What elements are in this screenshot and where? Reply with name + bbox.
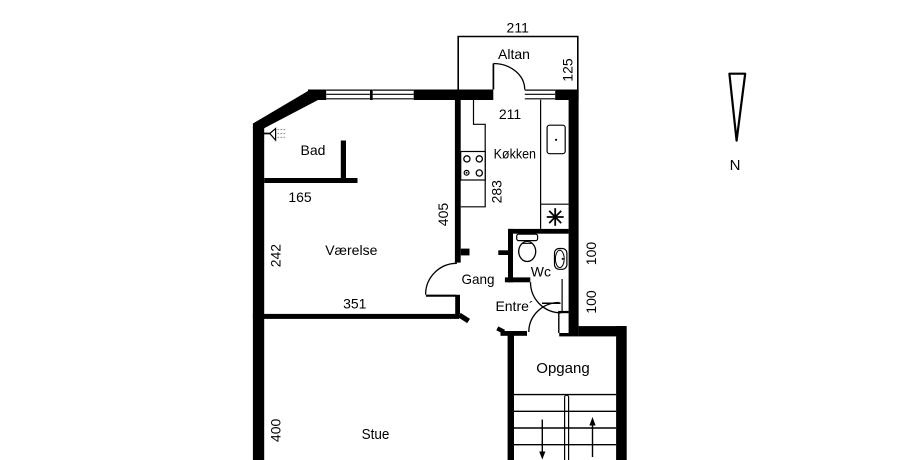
svg-text:Wc: Wc: [531, 264, 551, 280]
svg-text:165: 165: [288, 189, 312, 205]
svg-text:Bad: Bad: [301, 142, 326, 158]
svg-text:N: N: [730, 157, 741, 174]
svg-text:242: 242: [268, 244, 284, 268]
svg-text:211: 211: [499, 106, 522, 122]
svg-text:Værelse: Værelse: [325, 242, 377, 258]
svg-text:400: 400: [268, 419, 284, 443]
svg-text:Opgang: Opgang: [536, 360, 590, 377]
svg-text:405: 405: [435, 203, 451, 227]
svg-text:Køkken: Køkken: [494, 145, 536, 161]
svg-text:100: 100: [583, 290, 599, 314]
svg-text:125: 125: [560, 58, 576, 82]
svg-text:Gang: Gang: [462, 271, 495, 287]
svg-text:Stue: Stue: [362, 426, 390, 443]
svg-text:283: 283: [488, 180, 504, 204]
svg-text:351: 351: [343, 295, 367, 311]
svg-text:100: 100: [583, 242, 599, 266]
svg-text:211: 211: [507, 19, 530, 35]
svg-text:Entre´: Entre´: [495, 298, 533, 314]
svg-text:Altan: Altan: [498, 46, 530, 62]
